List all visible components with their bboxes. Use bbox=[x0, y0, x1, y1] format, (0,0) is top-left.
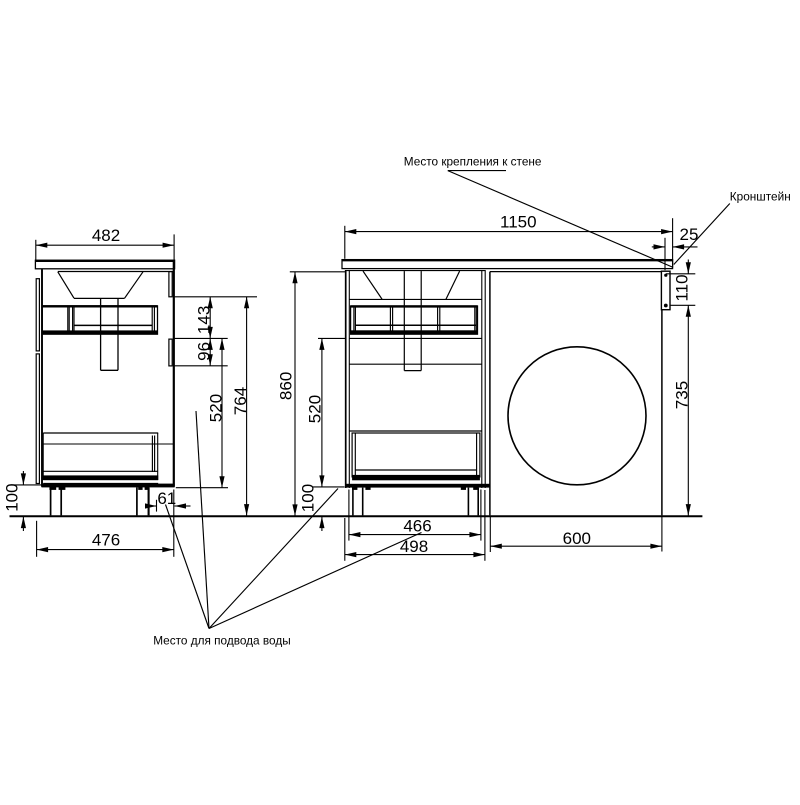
svg-text:143: 143 bbox=[194, 306, 213, 334]
svg-text:96: 96 bbox=[194, 342, 213, 361]
svg-text:735: 735 bbox=[673, 381, 692, 409]
svg-text:1150: 1150 bbox=[500, 212, 537, 231]
svg-text:764: 764 bbox=[231, 387, 250, 415]
svg-text:Кронштейн: Кронштейн bbox=[730, 190, 791, 204]
svg-text:Место крепления к стене: Место крепления к стене bbox=[404, 154, 542, 168]
svg-text:520: 520 bbox=[206, 394, 225, 422]
svg-text:476: 476 bbox=[92, 531, 120, 550]
svg-text:482: 482 bbox=[92, 226, 120, 245]
svg-text:600: 600 bbox=[563, 529, 591, 548]
svg-text:520: 520 bbox=[306, 395, 325, 423]
svg-text:110: 110 bbox=[673, 274, 692, 301]
svg-text:100: 100 bbox=[3, 483, 22, 511]
svg-text:860: 860 bbox=[276, 372, 295, 400]
svg-text:Место для подвода воды: Место для подвода воды bbox=[153, 634, 291, 648]
svg-text:100: 100 bbox=[298, 484, 317, 512]
svg-text:466: 466 bbox=[403, 517, 431, 536]
